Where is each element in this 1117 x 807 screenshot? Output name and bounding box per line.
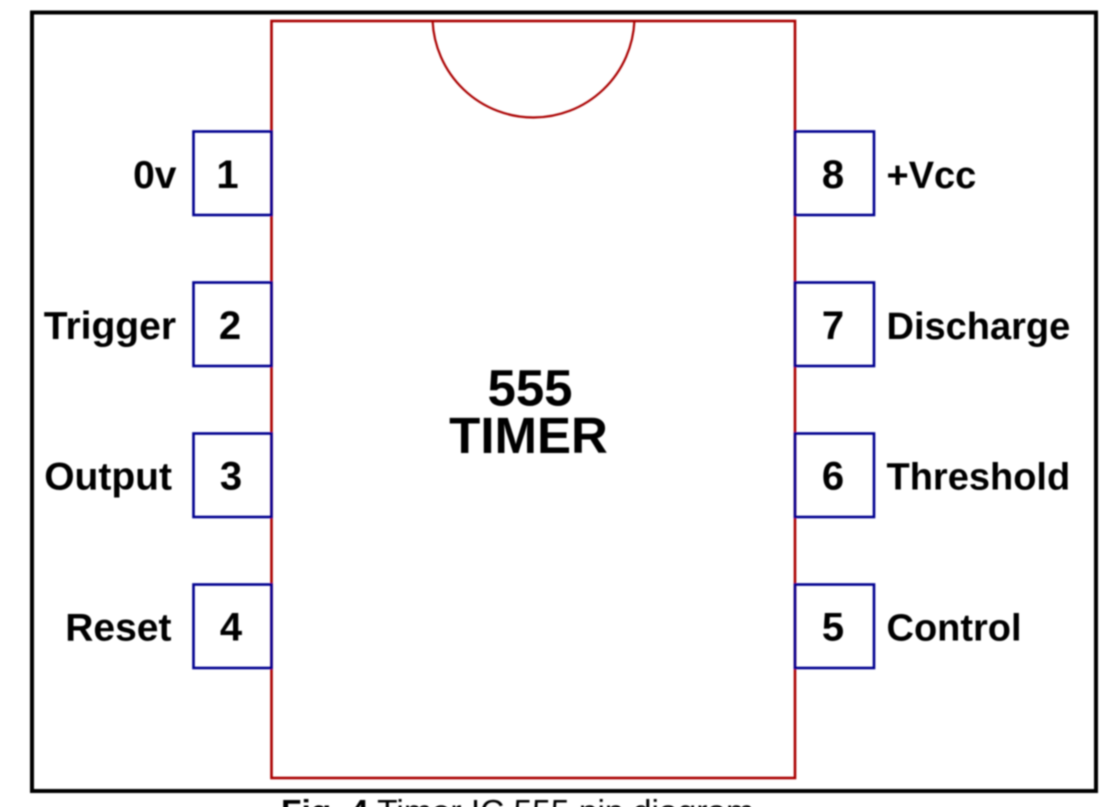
svg-text:6: 6 [822,455,844,499]
svg-text:8: 8 [822,153,844,197]
svg-text:4: 4 [220,606,243,650]
svg-text:2: 2 [219,304,241,348]
svg-text:Reset: Reset [65,607,171,650]
svg-text:TIMER: TIMER [449,407,608,464]
svg-text:+Vcc: +Vcc [887,155,977,197]
svg-text:Trigger: Trigger [44,305,176,348]
svg-text:Fig. 4 Timer IC 555 pin diagra: Fig. 4 Timer IC 555 pin diagram [281,794,754,807]
svg-text:Output: Output [44,456,172,499]
svg-text:Discharge: Discharge [887,306,1071,348]
svg-text:0v: 0v [133,154,177,197]
svg-text:3: 3 [220,455,242,499]
svg-text:Threshold: Threshold [887,457,1071,499]
svg-text:Control: Control [887,608,1022,650]
svg-text:1: 1 [216,153,238,197]
svg-text:7: 7 [822,304,844,348]
svg-text:5: 5 [822,606,844,650]
